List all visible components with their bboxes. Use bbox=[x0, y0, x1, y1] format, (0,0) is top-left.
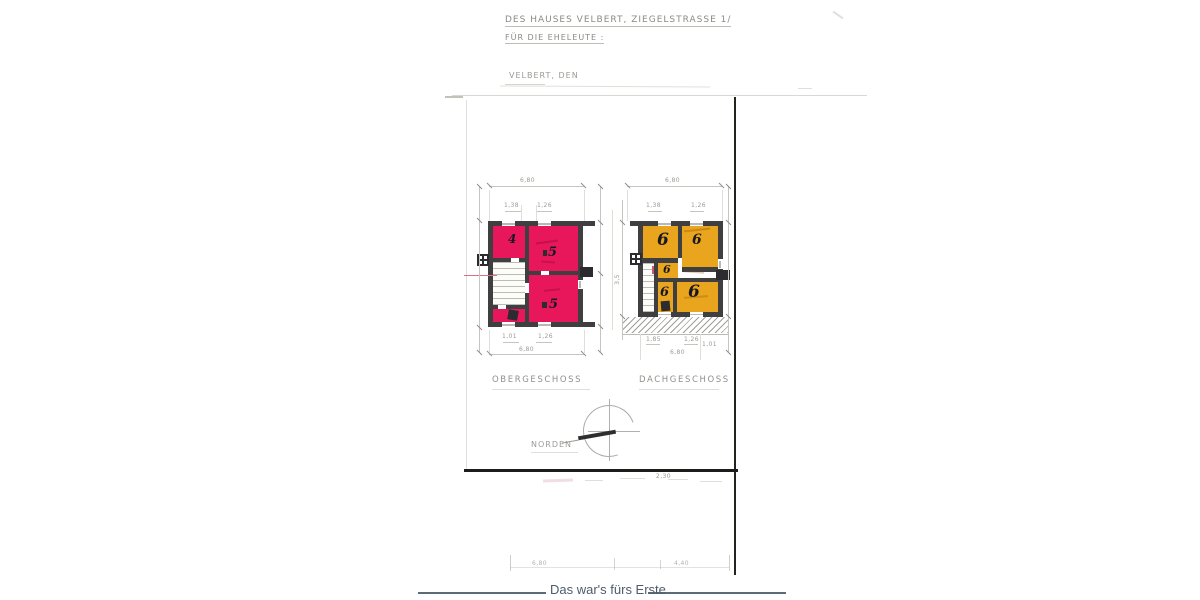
dim-extension bbox=[489, 190, 490, 221]
pencil-smudge bbox=[500, 85, 710, 87]
room-number: 5 bbox=[548, 246, 557, 259]
wall bbox=[515, 322, 538, 327]
chimney-pier bbox=[580, 267, 593, 277]
bath-fixture-mark bbox=[661, 301, 671, 312]
dim-label: 1,26 bbox=[537, 202, 552, 209]
sheet-corner-mark bbox=[445, 96, 463, 98]
faint-mark bbox=[585, 480, 603, 481]
header-title-line: DES HAUSES VELBERT, ZIEGELSTRASSE 1/ bbox=[505, 15, 731, 27]
red-reference-line bbox=[464, 275, 497, 276]
wall bbox=[643, 258, 678, 263]
wall bbox=[678, 226, 682, 258]
scan-artifact bbox=[833, 11, 844, 20]
room-number: 6 bbox=[660, 286, 669, 299]
bath-fixture-mark bbox=[507, 309, 519, 321]
staircase bbox=[493, 262, 525, 305]
dim-extension bbox=[627, 190, 628, 221]
number-mark bbox=[543, 250, 547, 256]
window bbox=[538, 324, 551, 326]
footer-rule-right bbox=[648, 592, 786, 594]
room-number: 6 bbox=[692, 233, 702, 247]
roof-hatching bbox=[622, 317, 728, 333]
dim-line bbox=[684, 344, 698, 345]
dim-line bbox=[690, 211, 704, 212]
dim-label: 4,40 bbox=[674, 560, 689, 567]
dim-line-vertical bbox=[612, 210, 613, 330]
wall bbox=[673, 282, 677, 312]
room-number: 6 bbox=[657, 232, 669, 249]
window bbox=[719, 261, 721, 268]
dim-extension bbox=[584, 330, 585, 353]
window bbox=[502, 324, 515, 326]
scan-left-edge bbox=[466, 100, 467, 469]
dim-tick-vertical bbox=[729, 555, 730, 571]
dim-label: 6,80 bbox=[519, 346, 534, 353]
wall bbox=[488, 221, 493, 327]
dim-tick-vertical bbox=[614, 558, 615, 570]
window bbox=[690, 223, 703, 225]
window bbox=[658, 314, 671, 316]
dim-line bbox=[503, 342, 519, 343]
wall bbox=[718, 221, 723, 259]
dim-label: 1,01 bbox=[502, 333, 517, 340]
chimney-block bbox=[630, 253, 642, 265]
scan-right-edge bbox=[734, 97, 736, 575]
wall-stub bbox=[582, 322, 595, 327]
wall bbox=[525, 293, 529, 322]
dim-extension bbox=[584, 190, 585, 221]
label-obergeschoss: OBERGESCHOSS bbox=[492, 375, 582, 385]
wall bbox=[630, 221, 658, 226]
dim-extension bbox=[521, 205, 522, 221]
hatch-border bbox=[622, 334, 728, 335]
dim-line bbox=[510, 567, 729, 568]
dim-label: 1,38 bbox=[504, 202, 519, 209]
dim-extension bbox=[489, 330, 490, 353]
faint-mark bbox=[620, 478, 645, 479]
dim-line bbox=[627, 186, 722, 187]
label-underline bbox=[639, 389, 719, 390]
dim-line-vertical bbox=[728, 186, 729, 353]
wall bbox=[519, 258, 525, 262]
dim-label: 1,01 bbox=[702, 341, 717, 348]
label-underline bbox=[531, 452, 578, 453]
wall bbox=[529, 271, 541, 275]
dim-line bbox=[648, 211, 662, 212]
faint-mark bbox=[700, 481, 722, 482]
wall-stub bbox=[582, 221, 595, 226]
pink-smudge bbox=[543, 478, 573, 482]
dim-line bbox=[489, 186, 584, 187]
wall bbox=[493, 258, 511, 262]
dim-label: 6,80 bbox=[665, 177, 680, 184]
pencil-smudge bbox=[505, 84, 545, 85]
faint-mark bbox=[668, 479, 688, 480]
window bbox=[658, 223, 671, 225]
wall bbox=[578, 289, 583, 327]
dim-extension bbox=[536, 205, 537, 221]
scanned-floorplan-document: DES HAUSES VELBERT, ZIEGELSTRASSE 1/ FÜR… bbox=[0, 0, 1200, 600]
dim-extension bbox=[722, 190, 723, 221]
sheet-boundary-line bbox=[452, 95, 867, 96]
dim-label: 1,26 bbox=[684, 336, 699, 343]
wall bbox=[493, 305, 498, 309]
dim-label: 6,80 bbox=[520, 177, 535, 184]
dim-label: 1,85 bbox=[646, 336, 661, 343]
window bbox=[502, 223, 515, 225]
dim-tick-vertical bbox=[510, 555, 511, 571]
room-number: 6 bbox=[663, 264, 671, 275]
room-number: 5 bbox=[549, 298, 558, 311]
dim-label: 6,80 bbox=[670, 349, 685, 356]
dim-label: 1,26 bbox=[691, 202, 706, 209]
footer-rule-left bbox=[418, 592, 546, 594]
dim-line bbox=[536, 211, 552, 212]
label-underline bbox=[492, 389, 590, 390]
annotation-scribble bbox=[684, 270, 704, 273]
dim-line bbox=[505, 211, 521, 212]
header-city-date: VELBERT, DEN bbox=[509, 71, 579, 80]
wall bbox=[549, 271, 578, 275]
compass-label: NORDEN bbox=[531, 440, 572, 449]
wall bbox=[654, 263, 658, 312]
dim-extension bbox=[640, 334, 641, 360]
scan-artifact bbox=[798, 88, 812, 89]
dim-line bbox=[536, 342, 552, 343]
dim-label: 3,5 bbox=[614, 274, 621, 285]
dim-label: 2,30 bbox=[656, 473, 671, 480]
window bbox=[690, 314, 703, 316]
label-dachgeschoss: DACHGESCHOSS bbox=[639, 375, 730, 385]
number-mark bbox=[542, 302, 547, 308]
header-subtitle-line: FÜR DIE EHELEUTE : bbox=[505, 33, 604, 44]
dim-extension bbox=[700, 334, 701, 360]
floorplan-obergeschoss: 4 5 5 bbox=[486, 221, 598, 330]
dim-label: 1,38 bbox=[646, 202, 661, 209]
dim-label: 1,26 bbox=[538, 333, 553, 340]
window bbox=[579, 281, 581, 288]
red-mark bbox=[652, 266, 654, 274]
footer-caption: Das war's fürs Erste bbox=[550, 582, 666, 597]
window bbox=[538, 223, 551, 225]
wall bbox=[638, 221, 643, 317]
dim-line bbox=[489, 354, 584, 355]
dim-label: 6,80 bbox=[532, 560, 547, 567]
sheet-divider-line bbox=[464, 469, 738, 472]
dim-line bbox=[646, 344, 660, 345]
room-number: 4 bbox=[508, 233, 516, 245]
